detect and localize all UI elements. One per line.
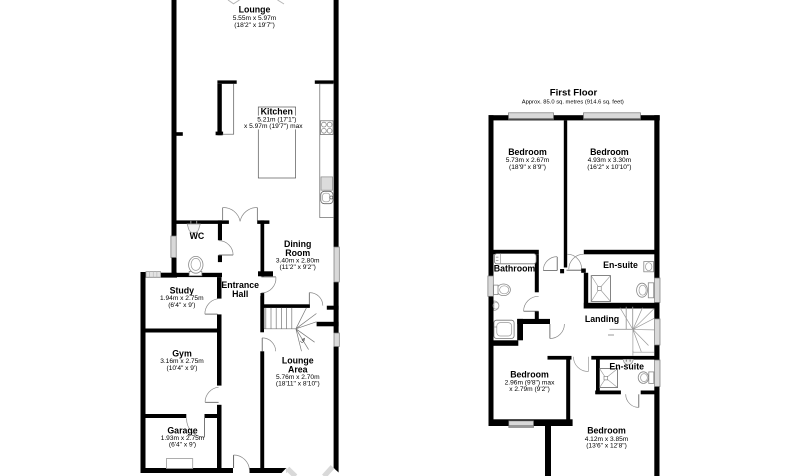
svg-text:(13'6" x 12'8"): (13'6" x 12'8") (586, 442, 627, 449)
svg-text:(6'4" x 9'): (6'4" x 9') (168, 302, 195, 309)
svg-text:Area: Area (288, 364, 308, 374)
svg-text:Lounge: Lounge (239, 4, 271, 14)
svg-text:(18'11" x 8'10"): (18'11" x 8'10") (276, 381, 320, 388)
svg-text:En-suite: En-suite (603, 260, 638, 270)
svg-text:Landing: Landing (585, 314, 619, 324)
svg-text:WC: WC (190, 231, 205, 241)
svg-text:(18'2" x 19'7"): (18'2" x 19'7") (234, 22, 275, 29)
svg-text:En-suite: En-suite (609, 361, 644, 371)
svg-text:Approx. 85.0 sq. metres (914.6: Approx. 85.0 sq. metres (914.6 sq. feet) (522, 100, 624, 106)
svg-text:x 2.79m (9'2"): x 2.79m (9'2") (509, 386, 550, 393)
svg-text:Room: Room (285, 248, 310, 258)
svg-text:(18'9" x 8'9"): (18'9" x 8'9") (509, 164, 546, 171)
svg-text:Bedroom: Bedroom (510, 369, 549, 379)
svg-text:(10'4" x 9'): (10'4" x 9') (167, 365, 198, 372)
svg-text:x 5.97m (19'7") max: x 5.97m (19'7") max (244, 123, 303, 130)
svg-text:(11'2" x 9'2"): (11'2" x 9'2") (279, 264, 315, 271)
svg-text:Bedroom: Bedroom (508, 147, 547, 157)
svg-text:Garage: Garage (167, 425, 197, 435)
svg-text:Bedroom: Bedroom (587, 426, 626, 436)
svg-text:Gym: Gym (172, 348, 192, 358)
svg-text:(6'4" x 9'): (6'4" x 9') (169, 442, 196, 449)
svg-text:Study: Study (170, 285, 195, 295)
svg-text:Bathroom: Bathroom (494, 264, 536, 274)
svg-text:Bedroom: Bedroom (590, 147, 629, 157)
svg-text:Kitchen: Kitchen (261, 106, 293, 116)
svg-text:First Floor: First Floor (550, 87, 598, 98)
svg-text:UP: UP (299, 336, 307, 344)
svg-text:(16'2" x 10'10"): (16'2" x 10'10") (587, 164, 631, 171)
svg-text:Hall: Hall (232, 289, 248, 299)
